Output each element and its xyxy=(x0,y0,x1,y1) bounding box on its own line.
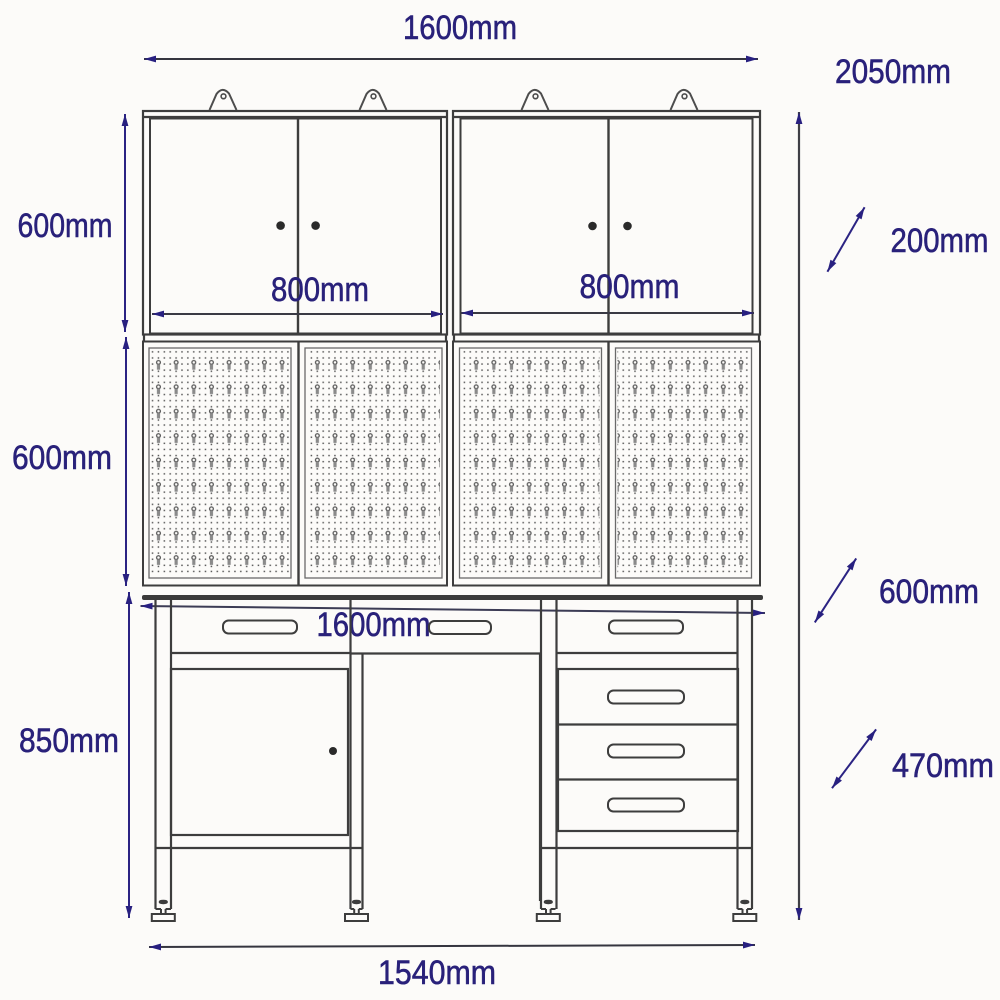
svg-text:600mm: 600mm xyxy=(12,439,112,477)
svg-text:2050mm: 2050mm xyxy=(835,53,951,91)
svg-text:1600mm: 1600mm xyxy=(403,9,517,47)
svg-text:850mm: 850mm xyxy=(19,722,119,760)
svg-text:1540mm: 1540mm xyxy=(378,954,496,992)
svg-text:800mm: 800mm xyxy=(271,271,369,309)
svg-text:600mm: 600mm xyxy=(18,207,113,245)
svg-text:600mm: 600mm xyxy=(879,573,979,611)
svg-text:800mm: 800mm xyxy=(580,268,680,306)
svg-text:1600mm: 1600mm xyxy=(317,606,431,644)
svg-text:200mm: 200mm xyxy=(891,222,989,260)
svg-text:470mm: 470mm xyxy=(892,747,994,785)
